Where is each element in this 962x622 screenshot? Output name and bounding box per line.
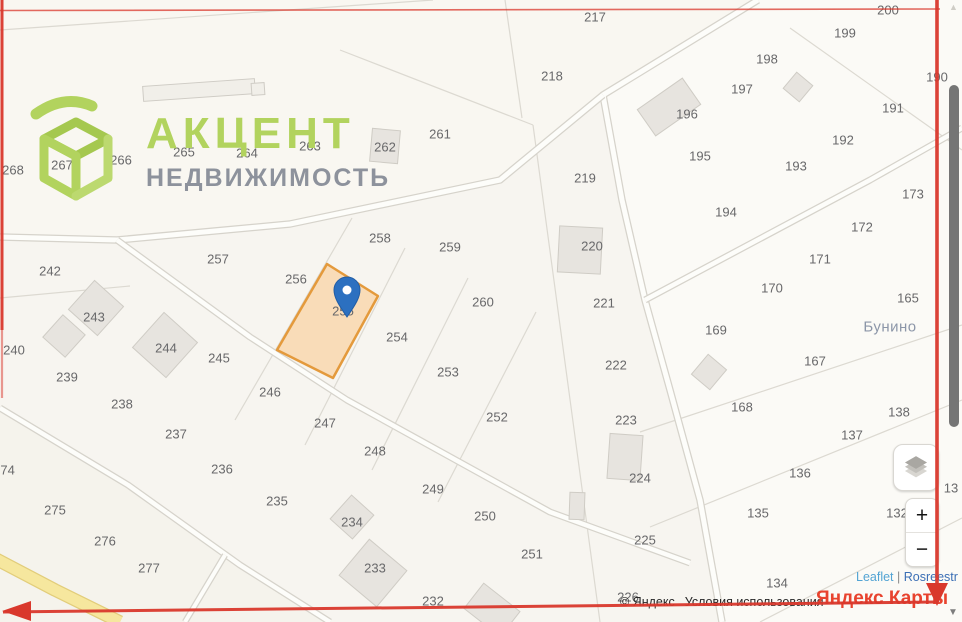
agency-watermark: АКЦЕНТ НЕДВИЖИМОСТЬ (14, 92, 390, 210)
building (330, 495, 374, 539)
leaflet-link[interactable]: Leaflet (856, 570, 894, 584)
agency-tagline: НЕДВИЖИМОСТЬ (146, 164, 390, 193)
agency-name: АКЦЕНТ (146, 112, 390, 156)
building (464, 583, 520, 622)
yandex-maps-logo[interactable]: Яндекс Карты (816, 588, 948, 610)
terms-link[interactable]: Условия использования (685, 595, 824, 609)
building (43, 315, 85, 357)
scrollbar-down-icon[interactable]: ▼ (948, 607, 958, 618)
attribution-separator: | (897, 570, 900, 584)
parcel-boundary (533, 125, 600, 622)
building (133, 312, 198, 377)
scrollbar-thumb[interactable] (949, 85, 959, 427)
building (607, 433, 643, 480)
map-attribution: © ЯндексУсловия использования (620, 595, 823, 609)
layers-icon (899, 451, 933, 485)
yandex-copyright-link[interactable]: © Яндекс (620, 595, 675, 609)
building (569, 492, 585, 520)
scrollbar-up-icon[interactable]: ▲ (949, 2, 958, 12)
zoom-out-button[interactable]: − (906, 532, 938, 566)
zoom-control: + − (905, 498, 939, 567)
layers-button[interactable] (893, 444, 939, 491)
zoom-in-button[interactable]: + (906, 499, 938, 532)
building (339, 539, 407, 607)
building (557, 226, 602, 274)
map-viewport[interactable]: 2682672662652642632622612172182001991981… (0, 0, 962, 622)
leaflet-attribution: Leaflet | Rosreestr (856, 570, 958, 584)
browser-scrollbar[interactable]: ▲ ▼ (946, 0, 962, 622)
road (117, 240, 690, 563)
agency-cube-icon (14, 92, 134, 210)
road-casing (117, 240, 690, 563)
